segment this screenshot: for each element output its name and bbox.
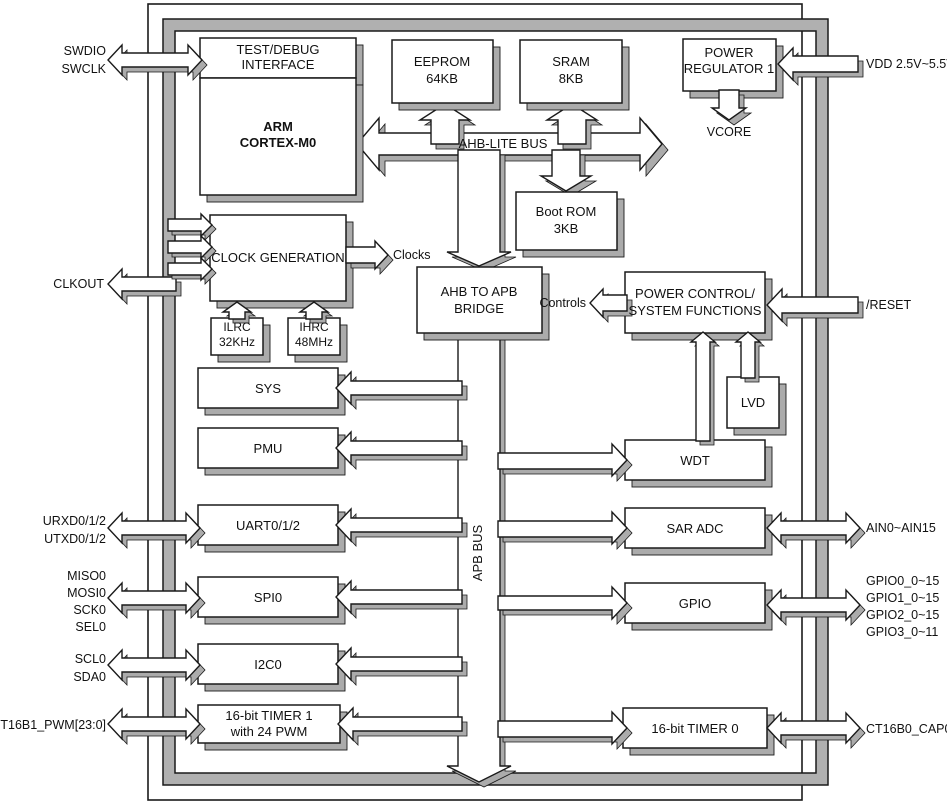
ahb-to-bridge-channel	[447, 150, 516, 271]
apb-connector-spi	[336, 581, 467, 618]
controls-annotation: Controls	[539, 296, 586, 310]
boot-rom-label-2: 3KB	[554, 221, 579, 236]
pin-label-vdd: VDD 2.5V~5.5V	[866, 57, 947, 71]
power-regulator-label-1: POWER	[704, 45, 753, 60]
pin-label-ct16b1-pwm: CT16B1_PWM[23:0]	[0, 718, 106, 732]
pin-arrow-timer1-pwm	[108, 709, 205, 744]
pin-label-sel: SEL0	[75, 620, 106, 634]
clock-generation-label: CLOCK GENERATION	[211, 250, 344, 265]
test-debug-label-2: INTERFACE	[242, 57, 315, 72]
apb-connector-i2c	[336, 648, 467, 685]
ahb-apb-bridge-label-1: AHB TO APB	[441, 284, 518, 299]
pin-arrow-uart	[108, 513, 205, 548]
apb-bus-label: APB BUS	[470, 524, 485, 581]
uart-label: UART0/1/2	[236, 518, 300, 533]
pin-label-mosi: MOSI0	[67, 586, 106, 600]
pin-label-scl: SCL0	[75, 652, 106, 666]
pin-label-ct16b0-cap0: CT16B0_CAP0	[866, 722, 947, 736]
gpio-label: GPIO	[679, 596, 712, 611]
pin-label-utxd: UTXD0/1/2	[44, 532, 106, 546]
pin-arrow-swdio-swclk	[108, 45, 207, 80]
ilrc-label-1: ILRC	[223, 320, 251, 334]
vcore-annotation: VCORE	[707, 125, 751, 139]
lvd-label: LVD	[741, 395, 765, 410]
ahb-apb-bridge-label-2: BRIDGE	[454, 301, 504, 316]
sram-label-2: 8KB	[559, 71, 584, 86]
pin-label-clkout: CLKOUT	[53, 277, 104, 291]
pin-arrow-spi	[108, 583, 205, 618]
ahb-lite-bus-label: AHB-LITE BUS	[459, 136, 548, 151]
pin-arrow-i2c	[108, 650, 205, 685]
test-debug-label-1: TEST/DEBUG	[236, 42, 319, 57]
apb-connector-uart	[336, 509, 467, 546]
eeprom-label-2: 64KB	[426, 71, 458, 86]
pin-label-sck: SCK0	[73, 603, 106, 617]
eeprom-label-1: EEPROM	[414, 54, 470, 69]
pin-label-ain: AIN0~AIN15	[866, 521, 936, 535]
wdt-label: WDT	[680, 453, 710, 468]
diagram-canvas: TEST/DEBUG INTERFACE ARM CORTEX-M0 EEPRO…	[0, 0, 947, 812]
pin-label-gpio2: GPIO2_0~15	[866, 608, 939, 622]
ilrc-label-2: 32KHz	[219, 335, 255, 349]
arm-label-2: CORTEX-M0	[240, 135, 317, 150]
apb-connector-sar-adc	[498, 512, 632, 549]
apb-connector-gpio	[498, 587, 632, 624]
sar-adc-label: SAR ADC	[666, 521, 723, 536]
spi-label: SPI0	[254, 590, 282, 605]
ihrc-label-2: 48MHz	[295, 335, 333, 349]
pin-label-gpio3: GPIO3_0~11	[866, 625, 938, 639]
clocks-annotation: Clocks	[393, 248, 431, 262]
apb-connector-wdt	[498, 444, 632, 481]
ihrc-label-1: IHRC	[299, 320, 329, 334]
wdt-powerctrl-arrow	[691, 332, 719, 445]
pin-label-gpio0: GPIO0_0~15	[866, 574, 939, 588]
apb-connector-pmu	[336, 432, 467, 469]
timer1-label-1: 16-bit TIMER 1	[225, 708, 312, 723]
sys-label: SYS	[255, 381, 281, 396]
timer0-label: 16-bit TIMER 0	[651, 721, 738, 736]
pin-label-reset: /RESET	[866, 298, 912, 312]
apb-connector-timer0	[498, 712, 632, 749]
apb-connector-sys	[336, 372, 467, 409]
pmu-label: PMU	[254, 441, 283, 456]
mcu-block-diagram: TEST/DEBUG INTERFACE ARM CORTEX-M0 EEPRO…	[0, 0, 947, 812]
i2c-label: I2C0	[254, 657, 281, 672]
power-regulator-label-2: REGULATOR 1	[684, 61, 775, 76]
arm-label-1: ARM	[263, 119, 293, 134]
pin-label-miso: MISO0	[67, 569, 106, 583]
power-control-label-2: SYSTEM FUNCTIONS	[629, 303, 762, 318]
timer1-label-2: with 24 PWM	[230, 724, 308, 739]
pin-label-urxd: URXD0/1/2	[43, 514, 106, 528]
sram-label-1: SRAM	[552, 54, 590, 69]
apb-connector-timer1	[338, 708, 467, 745]
pin-label-sda: SDA0	[73, 670, 106, 684]
pin-label-swclk: SWCLK	[62, 62, 107, 76]
power-control-label-1: POWER CONTROL/	[635, 286, 755, 301]
pin-label-swdio: SWDIO	[64, 44, 107, 58]
boot-rom-label-1: Boot ROM	[536, 204, 597, 219]
pin-arrow-reset	[767, 289, 863, 326]
pin-label-gpio1: GPIO1_0~15	[866, 591, 939, 605]
